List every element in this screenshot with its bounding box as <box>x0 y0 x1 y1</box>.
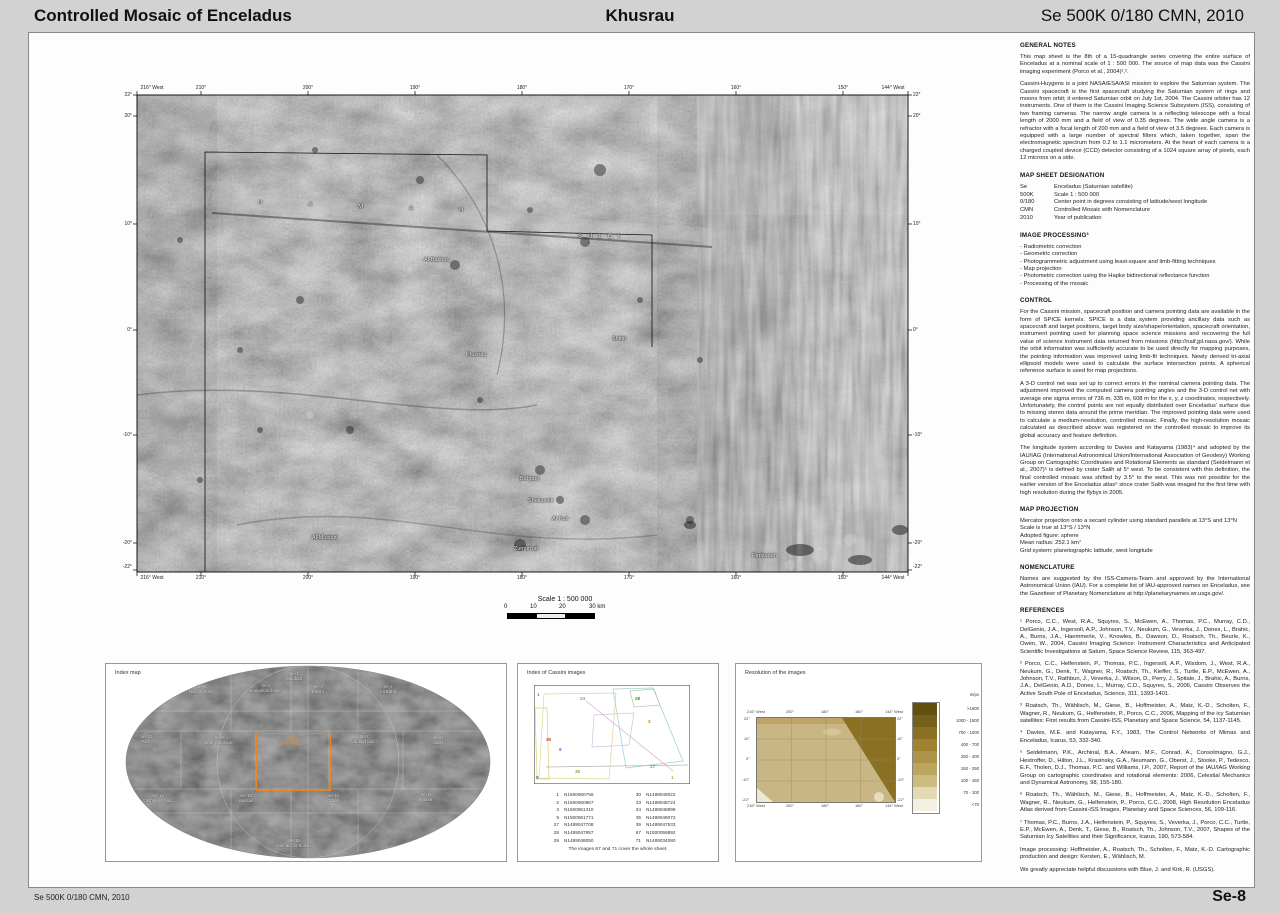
image-table-row: 1N150006075630N1489049022 <box>546 791 698 799</box>
legend-swatch <box>913 763 937 775</box>
footprint-number: 35 <box>575 769 580 774</box>
projection-line: Scale is true at 13°S / 13°N <box>1020 525 1250 532</box>
reference-item: ³ Roatsch, Th., Wählisch, M., Giese, B.,… <box>1020 703 1250 725</box>
lon-label: 200° <box>288 85 328 91</box>
legend-label: >1500 <box>941 706 979 711</box>
index-tile: Se-4Samarkand Sulci <box>238 683 294 694</box>
res-lon-label: 160° <box>844 709 874 714</box>
legend-swatch <box>913 751 937 763</box>
feature-label-crater: Zumurrud <box>514 546 538 552</box>
current-sheet-label: Se-8 Khusrau <box>264 735 320 746</box>
designation-row: CMNControlled Mosaic with Nomenclature <box>1020 207 1250 215</box>
lon-label: 190° <box>395 575 435 581</box>
processing-item: - Processing of the mosaic <box>1020 281 1250 288</box>
general-notes-paragraph: This map sheet is the 8th of a 15-quadra… <box>1020 54 1250 76</box>
lat-label: -10° <box>913 432 941 438</box>
legend-label: 150 - 250 <box>941 766 979 771</box>
lon-label: 200° <box>288 575 328 581</box>
lon-label: 210° <box>181 85 221 91</box>
feature-label-crater: Al-Kuz <box>552 516 568 522</box>
processing-item: - Radiometric correction <box>1020 244 1250 251</box>
legend-label: 1000 - 1500 <box>941 718 979 723</box>
processing-item: - Geometric correction <box>1020 251 1250 258</box>
legend-label: 100 - 150 <box>941 778 979 783</box>
res-lon-label: 216° West <box>741 709 771 714</box>
cassini-panel-title: Index of Cassini images <box>527 670 585 676</box>
feature-label-crater: Bahram <box>520 476 539 482</box>
processing-item: - Map projection <box>1020 266 1250 273</box>
section-heading: NOMENCLATURE <box>1020 564 1250 571</box>
lat-label: 20° <box>104 113 132 119</box>
lat-label: 20° <box>913 113 941 119</box>
section-heading: MAP SHEET DESIGNATION <box>1020 172 1250 179</box>
lon-label: 216° West <box>132 85 172 91</box>
resolution-minimap <box>756 717 896 803</box>
legend-swatch <box>913 703 937 715</box>
image-id-table: 1N150006075630N1489049022 2N150006086733… <box>546 791 698 844</box>
res-lon-label: 160° <box>844 803 874 808</box>
res-lon-label: 216° West <box>741 803 771 808</box>
footprint-number: 27 <box>650 764 655 769</box>
legend-swatch <box>913 715 937 727</box>
lat-label: 22° <box>104 92 132 98</box>
legend-label: 700 - 1000 <box>941 730 979 735</box>
res-lat-label: 10° <box>897 736 903 741</box>
footer-designation: Se 500K 0/180 CMN, 2010 <box>34 893 130 902</box>
index-tile: Se-14Cashmere Sulci <box>130 793 186 804</box>
feature-label-crater: Shirin <box>612 336 626 342</box>
legend-swatch <box>913 787 937 799</box>
feature-label-crater: Perizadah <box>752 553 777 559</box>
designation-row: SeEnceladus (Saturnian satellite) <box>1020 184 1250 192</box>
index-tile: Se-11Kamar <box>398 792 454 803</box>
footprint-number: 28 <box>635 696 640 701</box>
image-coverage-note: The images 67 and 71 cover the whole she… <box>518 847 718 852</box>
projection-line: Grid system: planetographic latitude, we… <box>1020 548 1250 555</box>
res-lat-label: 22° <box>744 716 750 721</box>
lat-label: 22° <box>913 92 941 98</box>
image-table-row: 9N150006177135N1489049072 <box>546 814 698 822</box>
footprint-number: 8 <box>536 775 539 780</box>
index-tile: Se-5Harran Sulci <box>173 684 229 695</box>
section-heading: IMAGE PROCESSING³ <box>1020 232 1250 239</box>
legend-label: 70 - 100 <box>941 790 979 795</box>
res-lat-label: -10° <box>742 777 749 782</box>
feature-label-crater: Al-Mustazi <box>312 535 338 541</box>
processing-item: - Photometric correction using the Hapke… <box>1020 273 1250 280</box>
legend-label: 400 - 700 <box>941 742 979 747</box>
res-lon-label: 200° <box>775 709 805 714</box>
scale-tick: 20 <box>559 604 566 610</box>
quadrangle-coverage-outline <box>205 152 652 572</box>
reference-item: ⁴ Davies, M.E. and Katayama, F.Y., 1983,… <box>1020 730 1250 745</box>
legend-swatch <box>913 727 937 739</box>
footprint-number: 30 <box>546 737 551 742</box>
section-heading: MAP PROJECTION <box>1020 506 1250 513</box>
index-tile: Se-12Otbah <box>305 793 361 804</box>
control-paragraph: The longitude system according to Davies… <box>1020 445 1250 497</box>
feature-label-crater: Khusrau <box>466 352 487 358</box>
section-heading: GENERAL NOTES <box>1020 42 1250 49</box>
lon-label: 160° <box>716 85 756 91</box>
reference-item: ⁶ Roatsch, Th., Wählisch, M., Giese, B.,… <box>1020 792 1250 814</box>
res-lat-label: -22° <box>897 797 904 802</box>
index-tile: Se-3Kasim <box>290 684 346 695</box>
res-lat-label: 0° <box>897 756 901 761</box>
nomenclature-paragraph: Names are suggested by the ISS-Camera-Te… <box>1020 576 1250 598</box>
legend-label: <70 <box>941 802 979 807</box>
projection-line: Mercator projection onto a secant cylind… <box>1020 518 1250 525</box>
image-table-row: 29N148904805071N1489034080 <box>546 837 698 845</box>
res-lat-label: 10° <box>744 736 750 741</box>
processing-item: - Photogrammetric adjustment using least… <box>1020 259 1250 266</box>
reference-item: ² Porco, C.C., Helfenstein, P., Thomas, … <box>1020 661 1250 698</box>
reference-item: ⁵ Seidelmann, P.K., Archinal, B.A., Ahea… <box>1020 750 1250 787</box>
map-neatline-and-ticks <box>129 87 916 580</box>
credits-line: We greatly appreciate helpful discussion… <box>1020 867 1250 874</box>
legend-unit: m/px <box>941 692 979 697</box>
image-table-row: 2N150006086733N1489048724 <box>546 799 698 807</box>
lon-label: 190° <box>395 85 435 91</box>
index-tile: Se-2Ali Baba <box>360 684 416 695</box>
res-lon-label: 180° <box>810 803 840 808</box>
projection-line: Mean radius: 252.1 km⁷ <box>1020 540 1250 547</box>
lon-label: 170° <box>609 85 649 91</box>
lat-label: 0° <box>104 327 132 333</box>
scale-tick: 30 km <box>589 604 605 610</box>
res-lon-label: 144° West <box>879 803 909 808</box>
designation-row: 2010Year of publication <box>1020 215 1250 223</box>
index-map-panel: Index map <box>105 663 507 862</box>
reference-item: ¹ Porco, C.C., West, R.A., Squyres, S., … <box>1020 619 1250 656</box>
res-lat-label: -22° <box>742 797 749 802</box>
scale-title: Scale 1 : 500 000 <box>460 596 670 603</box>
footprint-number: 1 <box>671 775 674 780</box>
map-sheet-page: Controlled Mosaic of Enceladus Khusrau S… <box>0 0 1280 913</box>
general-notes-paragraph: Cassini-Huygens is a joint NASA/ESA/ASI … <box>1020 81 1250 162</box>
legend-label: 250 - 400 <box>941 754 979 759</box>
res-lat-label: -10° <box>897 777 904 782</box>
lat-label: -20° <box>104 540 132 546</box>
section-heading: REFERENCES <box>1020 607 1250 614</box>
control-paragraph: For the Cassini mission, spacecraft posi… <box>1020 309 1250 376</box>
section-heading: CONTROL <box>1020 297 1250 304</box>
index-tile: Se-15Damascus Sulcus <box>266 838 322 849</box>
designation-row: 0/180Center point in degrees consisting … <box>1020 199 1250 207</box>
lon-label: 144° West <box>873 575 913 581</box>
lat-label: -10° <box>104 432 132 438</box>
legend-swatch <box>913 799 937 811</box>
legend-swatch <box>913 775 937 787</box>
res-lat-label: 22° <box>897 716 903 721</box>
index-tile: Se-7Labtayt Sulci <box>336 734 392 745</box>
scale-tick: 0 <box>504 604 507 610</box>
feature-label-crater: Shakashik <box>528 498 553 504</box>
footprint-number: 3 <box>648 719 651 724</box>
lon-label: 180° <box>502 85 542 91</box>
lon-label: 180° <box>502 575 542 581</box>
lon-label: 170° <box>609 575 649 581</box>
legend-swatch <box>913 739 937 751</box>
lon-label: 150° <box>823 85 863 91</box>
image-table-row: 27N148904770839N1489047533 <box>546 821 698 829</box>
control-paragraph: A 3-D control net was set up to correct … <box>1020 381 1250 440</box>
footprint-number: 24 <box>580 696 585 701</box>
resolution-panel-title: Resolution of the images <box>745 670 806 676</box>
reference-item: ⁷ Thomas, P.C., Burns, J.A., Helfenstein… <box>1020 820 1250 842</box>
designation-row: 500KScale 1 : 500 000 <box>1020 192 1250 200</box>
image-footprints-diagram <box>534 685 690 784</box>
lon-label: 160° <box>716 575 756 581</box>
scale-bar <box>507 613 595 619</box>
cassini-index-panel: Index of Cassini images 1 24 28 3 30 9 3… <box>517 663 719 862</box>
footprint-number: 9 <box>559 747 562 752</box>
index-tile: Se-9Ebony Dorsum <box>191 735 247 746</box>
sheet-number: Se-8 <box>1212 888 1246 906</box>
res-lon-label: 200° <box>775 803 805 808</box>
lon-label: 216° West <box>132 575 172 581</box>
lat-label: -22° <box>104 564 132 570</box>
lat-label: 10° <box>104 221 132 227</box>
index-tile: Se-13Hassan <box>218 793 274 804</box>
image-table-row: 28N148904795767N1500059892 <box>546 829 698 837</box>
scale-tick: 10 <box>530 604 537 610</box>
feature-label-sulci-word2: SULCI <box>578 234 626 240</box>
res-lon-label: 180° <box>810 709 840 714</box>
lat-label: -22° <box>913 564 941 570</box>
lat-label: 10° <box>913 221 941 227</box>
res-lat-label: 0° <box>746 756 750 761</box>
index-tile: Se-10Aziz <box>118 734 174 745</box>
lon-label: 144° West <box>873 85 913 91</box>
footprint-number: 1 <box>537 692 540 697</box>
lon-label: 210° <box>181 575 221 581</box>
sheet-designation: Se 500K 0/180 CMN, 2010 <box>1041 6 1244 26</box>
index-tile: Se-6Salih <box>410 735 466 746</box>
credits-line: Image processing: Hoffmeister, A., Roats… <box>1020 847 1250 862</box>
index-tile: Se-1Sindbad <box>266 671 322 682</box>
lat-label: 0° <box>913 327 941 333</box>
resolution-panel: Resolution of the images 216° West 200° … <box>735 663 982 862</box>
lat-label: -20° <box>913 540 941 546</box>
res-lon-label: 144° West <box>879 709 909 714</box>
marginal-notes-column: GENERAL NOTES This map sheet is the 8th … <box>1020 42 1250 882</box>
image-table-row: 3N150006131034N1489048898 <box>546 806 698 814</box>
feature-label-crater: Al-Bakbuk <box>424 257 449 263</box>
lon-label: 150° <box>823 575 863 581</box>
